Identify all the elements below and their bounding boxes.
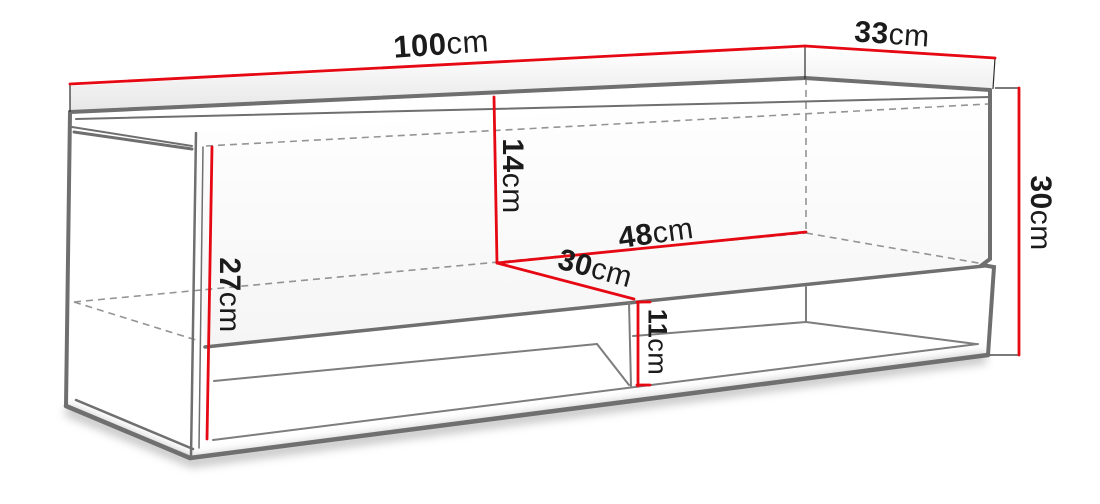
dimension-value: 33 [853,15,890,50]
dimension-value: 14 [496,138,529,172]
dimension-value: 30 [1024,175,1057,209]
dimension-unit: cm [888,18,931,54]
dimension-value: 48 [616,218,655,255]
dimension-unit: cm [445,23,490,61]
dimension-label-carcass-interior-height: 27cm [214,257,244,332]
dimension-value: 27 [213,257,246,291]
cabinet-line-drawing [0,0,1100,504]
dimension-value: 11 [643,309,673,339]
dimension-label-depth-top: 33cm [853,17,930,52]
dimension-unit: cm [643,338,673,375]
dimension-unit: cm [1024,210,1057,251]
dimension-label-width-top: 100cm [392,25,489,63]
dimension-unit: cm [213,292,246,333]
dimension-unit: cm [496,173,529,214]
dimension-unit: cm [650,212,695,250]
dimension-value: 100 [392,26,448,65]
furniture-dimension-diagram: 100cm 33cm 30cm 14cm 48cm 30cm 27cm 11cm [0,0,1100,504]
dimension-label-lower-opening-height: 11cm [644,309,671,376]
dimension-label-height-right: 30cm [1025,175,1055,250]
dimension-label-upper-interior-height: 14cm [497,138,527,213]
